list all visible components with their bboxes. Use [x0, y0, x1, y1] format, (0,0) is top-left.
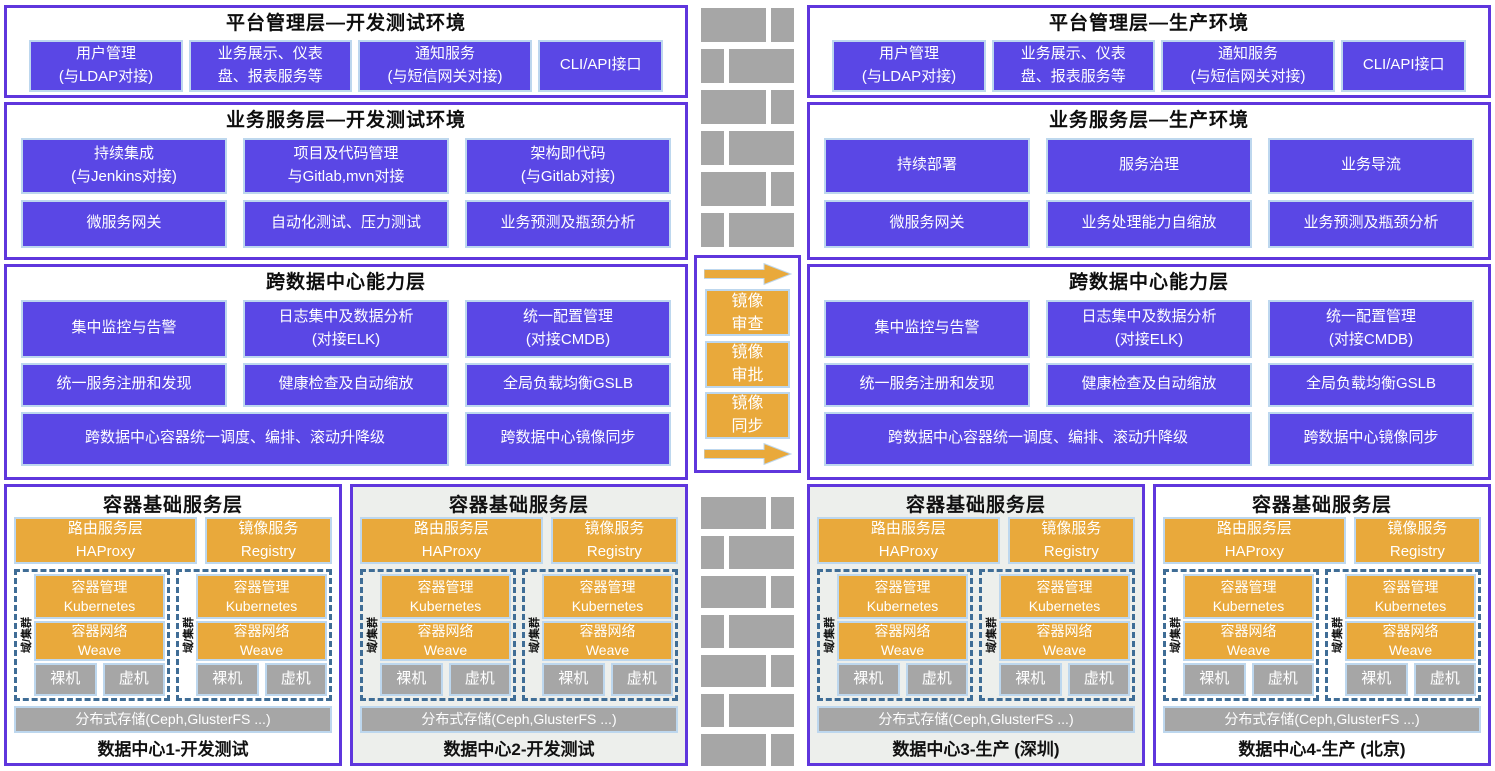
production-column: 平台管理层—生产环境 用户管理 (与LDAP对接) 业务展示、仪表 盘、报表服务… — [807, 5, 1491, 766]
clusters-row: 域/集群 容器管理 Kubernetes 容器网络 Weave 裸机 虚机 域/… — [14, 569, 332, 701]
weave-box: 容器网络 Weave — [999, 621, 1130, 661]
config-management-box: 统一配置管理 (对接CMDB) — [465, 300, 671, 358]
distributed-storage-box: 分布式存储(Ceph,GlusterFS ...) — [1163, 706, 1481, 733]
production-datacenters: 容器基础服务层 路由服务层 HAProxy 镜像服务 Registry 域/集群… — [807, 484, 1491, 766]
registry-box: 镜像服务 Registry — [205, 517, 332, 564]
kubernetes-box: 容器管理 Kubernetes — [542, 574, 673, 619]
weave-box: 容器网络 Weave — [196, 621, 327, 661]
service-registry-box: 统一服务注册和发现 — [21, 363, 227, 407]
platform-layer-devtest: 平台管理层—开发测试环境 用户管理 (与LDAP对接) 业务展示、仪表 盘、报表… — [4, 5, 688, 98]
infra-as-code-box: 架构即代码 (与Gitlab对接) — [465, 138, 671, 194]
kubernetes-box: 容器管理 Kubernetes — [380, 574, 511, 619]
business-items: 持续部署 服务治理 业务导流 微服务网关 业务处理能力自缩放 业务预测及瓶颈分析 — [810, 135, 1488, 248]
platform-layer-production: 平台管理层—生产环境 用户管理 (与LDAP对接) 业务展示、仪表 盘、报表服务… — [807, 5, 1491, 98]
bare-metal-box: 裸机 — [1345, 663, 1408, 696]
weave-box: 容器网络 Weave — [1183, 621, 1314, 661]
datacenter-2-label: 数据中心2-开发测试 — [360, 733, 678, 759]
image-sync-step-box: 镜像 同步 — [705, 392, 790, 439]
datacenter-2: 容器基础服务层 路由服务层 HAProxy 镜像服务 Registry 域/集群… — [350, 484, 688, 766]
platform-layer-production-title: 平台管理层—生产环境 — [810, 8, 1488, 38]
container-layer-title: 容器基础服务层 — [1163, 487, 1481, 517]
datacenter-1: 容器基础服务层 路由服务层 HAProxy 镜像服务 Registry 域/集群… — [4, 484, 342, 766]
cluster-vertical-label: 域/集群 — [527, 574, 542, 696]
business-layer-production: 业务服务层—生产环境 持续部署 服务治理 业务导流 微服务网关 业务处理能力自缩… — [807, 102, 1491, 260]
bare-metal-box: 裸机 — [542, 663, 605, 696]
right-arrow-icon — [704, 263, 792, 285]
auto-scaling-capacity-box: 业务处理能力自缩放 — [1046, 200, 1252, 248]
firewall-column: 镜像 审查 镜像 审批 镜像 同步 — [694, 5, 801, 766]
distributed-storage-box: 分布式存储(Ceph,GlusterFS ...) — [14, 706, 332, 733]
business-layer-production-title: 业务服务层—生产环境 — [810, 105, 1488, 135]
log-analysis-box: 日志集中及数据分析 (对接ELK) — [243, 300, 449, 358]
dashboard-report-box: 业务展示、仪表 盘、报表服务等 — [992, 40, 1155, 92]
cluster-box: 域/集群 容器管理 Kubernetes 容器网络 Weave 裸机 虚机 — [176, 569, 332, 701]
distributed-storage-box: 分布式存储(Ceph,GlusterFS ...) — [817, 706, 1135, 733]
microservice-gateway-box: 微服务网关 — [824, 200, 1030, 248]
cli-api-box: CLI/API接口 — [1341, 40, 1466, 92]
datacenter-3-label: 数据中心3-生产 (深圳) — [817, 733, 1135, 759]
bare-metal-box: 裸机 — [837, 663, 900, 696]
microservice-gateway-box: 微服务网关 — [21, 200, 227, 248]
bottleneck-analysis-box: 业务预测及瓶颈分析 — [1268, 200, 1474, 248]
notification-service-box: 通知服务 (与短信网关对接) — [1161, 40, 1336, 92]
bare-metal-box: 裸机 — [34, 663, 97, 696]
vm-box: 虚机 — [611, 663, 674, 696]
business-items: 持续集成 (与Jenkins对接) 项目及代码管理 与Gitlab,mvn对接 … — [7, 135, 685, 248]
clusters-row: 域/集群 容器管理 Kubernetes 容器网络 Weave 裸机 虚机 域/… — [360, 569, 678, 701]
log-analysis-box: 日志集中及数据分析 (对接ELK) — [1046, 300, 1252, 358]
datacenter-4: 容器基础服务层 路由服务层 HAProxy 镜像服务 Registry 域/集群… — [1153, 484, 1491, 766]
weave-box: 容器网络 Weave — [380, 621, 511, 661]
bare-metal-box: 裸机 — [196, 663, 259, 696]
weave-box: 容器网络 Weave — [1345, 621, 1476, 661]
bottleneck-analysis-box: 业务预测及瓶颈分析 — [465, 200, 671, 248]
kubernetes-box: 容器管理 Kubernetes — [196, 574, 327, 619]
registry-box: 镜像服务 Registry — [1354, 517, 1481, 564]
weave-box: 容器网络 Weave — [837, 621, 968, 661]
haproxy-box: 路由服务层 HAProxy — [817, 517, 1000, 564]
registry-box: 镜像服务 Registry — [1008, 517, 1135, 564]
service-governance-box: 服务治理 — [1046, 138, 1252, 194]
clusters-row: 域/集群 容器管理 Kubernetes 容器网络 Weave 裸机 虚机 域/… — [817, 569, 1135, 701]
code-management-box: 项目及代码管理 与Gitlab,mvn对接 — [243, 138, 449, 194]
image-sync-box: 跨数据中心镜像同步 — [1268, 412, 1474, 466]
firewall-wall-bottom — [694, 497, 801, 766]
clusters-row: 域/集群 容器管理 Kubernetes 容器网络 Weave 裸机 虚机 域/… — [1163, 569, 1481, 701]
user-management-box: 用户管理 (与LDAP对接) — [29, 40, 183, 92]
cluster-vertical-label: 域/集群 — [1330, 574, 1345, 696]
weave-box: 容器网络 Weave — [542, 621, 673, 661]
cluster-box: 域/集群 容器管理 Kubernetes 容器网络 Weave 裸机 虚机 — [360, 569, 516, 701]
datacenter-1-label: 数据中心1-开发测试 — [14, 733, 332, 759]
crossdc-layer-left: 跨数据中心能力层 集中监控与告警 日志集中及数据分析 (对接ELK) 统一配置管… — [4, 264, 688, 480]
traffic-steering-box: 业务导流 — [1268, 138, 1474, 194]
cluster-box: 域/集群 容器管理 Kubernetes 容器网络 Weave 裸机 虚机 — [1325, 569, 1481, 701]
gslb-box: 全局负载均衡GSLB — [1268, 363, 1474, 407]
kubernetes-box: 容器管理 Kubernetes — [1183, 574, 1314, 619]
crossdc-layer-left-title: 跨数据中心能力层 — [7, 267, 685, 297]
container-layer-title: 容器基础服务层 — [14, 487, 332, 517]
ci-box: 持续集成 (与Jenkins对接) — [21, 138, 227, 194]
health-check-box: 健康检查及自动缩放 — [1046, 363, 1252, 407]
cluster-vertical-label: 域/集群 — [365, 574, 380, 696]
cd-box: 持续部署 — [824, 138, 1030, 194]
kubernetes-box: 容器管理 Kubernetes — [1345, 574, 1476, 619]
crossdc-layer-right: 跨数据中心能力层 集中监控与告警 日志集中及数据分析 (对接ELK) 统一配置管… — [807, 264, 1491, 480]
firewall-wall-top — [694, 8, 801, 247]
distributed-storage-box: 分布式存储(Ceph,GlusterFS ...) — [360, 706, 678, 733]
kubernetes-box: 容器管理 Kubernetes — [34, 574, 165, 619]
devtest-datacenters: 容器基础服务层 路由服务层 HAProxy 镜像服务 Registry 域/集群… — [4, 484, 688, 766]
cluster-vertical-label: 域/集群 — [1168, 574, 1183, 696]
architecture-diagram: 平台管理层—开发测试环境 用户管理 (与LDAP对接) 业务展示、仪表 盘、报表… — [0, 0, 1495, 771]
vm-box: 虚机 — [1252, 663, 1315, 696]
dc-services-row: 路由服务层 HAProxy 镜像服务 Registry — [14, 517, 332, 564]
container-layer-title: 容器基础服务层 — [360, 487, 678, 517]
cluster-box: 域/集群 容器管理 Kubernetes 容器网络 Weave 裸机 虚机 — [522, 569, 678, 701]
vm-box: 虚机 — [449, 663, 512, 696]
central-monitoring-box: 集中监控与告警 — [824, 300, 1030, 358]
vm-box: 虚机 — [1414, 663, 1477, 696]
vm-box: 虚机 — [1068, 663, 1131, 696]
config-management-box: 统一配置管理 (对接CMDB) — [1268, 300, 1474, 358]
kubernetes-box: 容器管理 Kubernetes — [999, 574, 1130, 619]
platform-items: 用户管理 (与LDAP对接) 业务展示、仪表 盘、报表服务等 通知服务 (与短信… — [7, 38, 685, 92]
dc-services-row: 路由服务层 HAProxy 镜像服务 Registry — [360, 517, 678, 564]
cluster-box: 域/集群 容器管理 Kubernetes 容器网络 Weave 裸机 虚机 — [1163, 569, 1319, 701]
cluster-vertical-label: 域/集群 — [984, 574, 999, 696]
notification-service-box: 通知服务 (与短信网关对接) — [358, 40, 533, 92]
crossdc-items: 集中监控与告警 日志集中及数据分析 (对接ELK) 统一配置管理 (对接CMDB… — [810, 297, 1488, 466]
platform-items: 用户管理 (与LDAP对接) 业务展示、仪表 盘、报表服务等 通知服务 (与短信… — [810, 38, 1488, 92]
business-layer-devtest: 业务服务层—开发测试环境 持续集成 (与Jenkins对接) 项目及代码管理 与… — [4, 102, 688, 260]
gslb-box: 全局负载均衡GSLB — [465, 363, 671, 407]
haproxy-box: 路由服务层 HAProxy — [14, 517, 197, 564]
weave-box: 容器网络 Weave — [34, 621, 165, 661]
devtest-column: 平台管理层—开发测试环境 用户管理 (与LDAP对接) 业务展示、仪表 盘、报表… — [4, 5, 688, 766]
cluster-box: 域/集群 容器管理 Kubernetes 容器网络 Weave 裸机 虚机 — [817, 569, 973, 701]
bare-metal-box: 裸机 — [1183, 663, 1246, 696]
health-check-box: 健康检查及自动缩放 — [243, 363, 449, 407]
vm-box: 虚机 — [103, 663, 166, 696]
business-layer-devtest-title: 业务服务层—开发测试环境 — [7, 105, 685, 135]
cluster-vertical-label: 域/集群 — [822, 574, 837, 696]
platform-layer-devtest-title: 平台管理层—开发测试环境 — [7, 8, 685, 38]
haproxy-box: 路由服务层 HAProxy — [360, 517, 543, 564]
dc-services-row: 路由服务层 HAProxy 镜像服务 Registry — [817, 517, 1135, 564]
vm-box: 虚机 — [265, 663, 328, 696]
haproxy-box: 路由服务层 HAProxy — [1163, 517, 1346, 564]
crossdc-items: 集中监控与告警 日志集中及数据分析 (对接ELK) 统一配置管理 (对接CMDB… — [7, 297, 685, 466]
service-registry-box: 统一服务注册和发现 — [824, 363, 1030, 407]
cluster-vertical-label: 域/集群 — [19, 574, 34, 696]
registry-box: 镜像服务 Registry — [551, 517, 678, 564]
user-management-box: 用户管理 (与LDAP对接) — [832, 40, 986, 92]
container-layer-title: 容器基础服务层 — [817, 487, 1135, 517]
image-approval-box: 镜像 审批 — [705, 341, 790, 388]
datacenter-4-label: 数据中心4-生产 (北京) — [1163, 733, 1481, 759]
dc-services-row: 路由服务层 HAProxy 镜像服务 Registry — [1163, 517, 1481, 564]
vm-box: 虚机 — [906, 663, 969, 696]
crossdc-layer-right-title: 跨数据中心能力层 — [810, 267, 1488, 297]
kubernetes-box: 容器管理 Kubernetes — [837, 574, 968, 619]
bare-metal-box: 裸机 — [999, 663, 1062, 696]
cluster-box: 域/集群 容器管理 Kubernetes 容器网络 Weave 裸机 虚机 — [14, 569, 170, 701]
cluster-box: 域/集群 容器管理 Kubernetes 容器网络 Weave 裸机 虚机 — [979, 569, 1135, 701]
image-flow-box: 镜像 审查 镜像 审批 镜像 同步 — [694, 255, 801, 473]
scheduling-orchestration-box: 跨数据中心容器统一调度、编排、滚动升降级 — [824, 412, 1252, 466]
automated-testing-box: 自动化测试、压力测试 — [243, 200, 449, 248]
scheduling-orchestration-box: 跨数据中心容器统一调度、编排、滚动升降级 — [21, 412, 449, 466]
bare-metal-box: 裸机 — [380, 663, 443, 696]
image-review-box: 镜像 审查 — [705, 289, 790, 336]
central-monitoring-box: 集中监控与告警 — [21, 300, 227, 358]
cli-api-box: CLI/API接口 — [538, 40, 663, 92]
cluster-vertical-label: 域/集群 — [181, 574, 196, 696]
right-arrow-icon — [704, 443, 792, 465]
image-sync-box: 跨数据中心镜像同步 — [465, 412, 671, 466]
datacenter-3: 容器基础服务层 路由服务层 HAProxy 镜像服务 Registry 域/集群… — [807, 484, 1145, 766]
dashboard-report-box: 业务展示、仪表 盘、报表服务等 — [189, 40, 352, 92]
